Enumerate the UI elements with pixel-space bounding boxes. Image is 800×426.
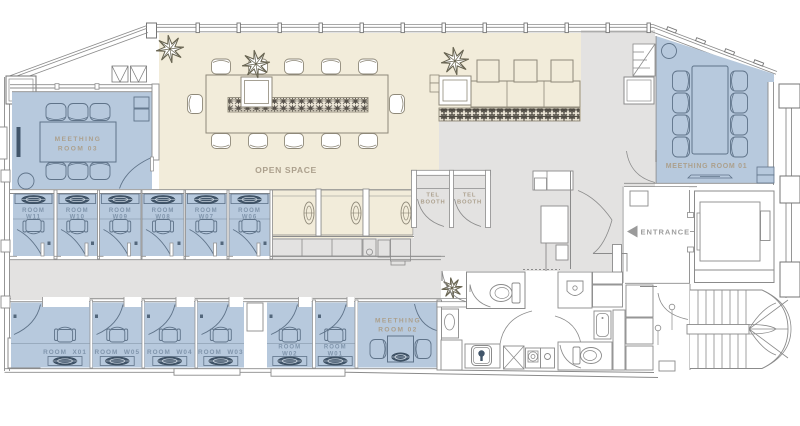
svg-text:TEL: TEL bbox=[463, 193, 476, 199]
svg-text:ROOM: ROOM bbox=[278, 345, 301, 351]
svg-text:ROOM W03: ROOM W03 bbox=[198, 349, 244, 356]
svg-text:ROOM W05: ROOM W05 bbox=[94, 349, 140, 356]
svg-text:ROOM X01: ROOM X01 bbox=[43, 349, 87, 356]
svg-text:ENTRANCE: ENTRANCE bbox=[641, 228, 691, 237]
svg-text:W02: W02 bbox=[282, 351, 297, 357]
svg-text:ROOM: ROOM bbox=[238, 208, 261, 214]
svg-text:ROOM: ROOM bbox=[109, 208, 132, 214]
svg-text:W01: W01 bbox=[328, 351, 343, 357]
svg-text:ROOM 03: ROOM 03 bbox=[58, 146, 98, 153]
svg-text:ROOM: ROOM bbox=[66, 208, 89, 214]
svg-text:ROOM: ROOM bbox=[195, 208, 218, 214]
svg-text:ROOM: ROOM bbox=[324, 345, 347, 351]
svg-text:TEL: TEL bbox=[426, 193, 439, 199]
svg-text:ROOM 02: ROOM 02 bbox=[378, 327, 417, 334]
svg-text:BOOTH: BOOTH bbox=[457, 200, 482, 206]
svg-text:MEETHING: MEETHING bbox=[375, 318, 421, 325]
svg-text:OPEN SPACE: OPEN SPACE bbox=[255, 165, 317, 175]
svg-text:MEETHING ROOM 01: MEETHING ROOM 01 bbox=[666, 163, 748, 170]
svg-text:ROOM: ROOM bbox=[22, 208, 45, 214]
svg-text:ROOM W04: ROOM W04 bbox=[147, 349, 193, 356]
svg-text:MEETHING: MEETHING bbox=[55, 136, 102, 143]
svg-text:ROOM: ROOM bbox=[152, 208, 175, 214]
svg-text:BOOTH: BOOTH bbox=[421, 200, 446, 206]
